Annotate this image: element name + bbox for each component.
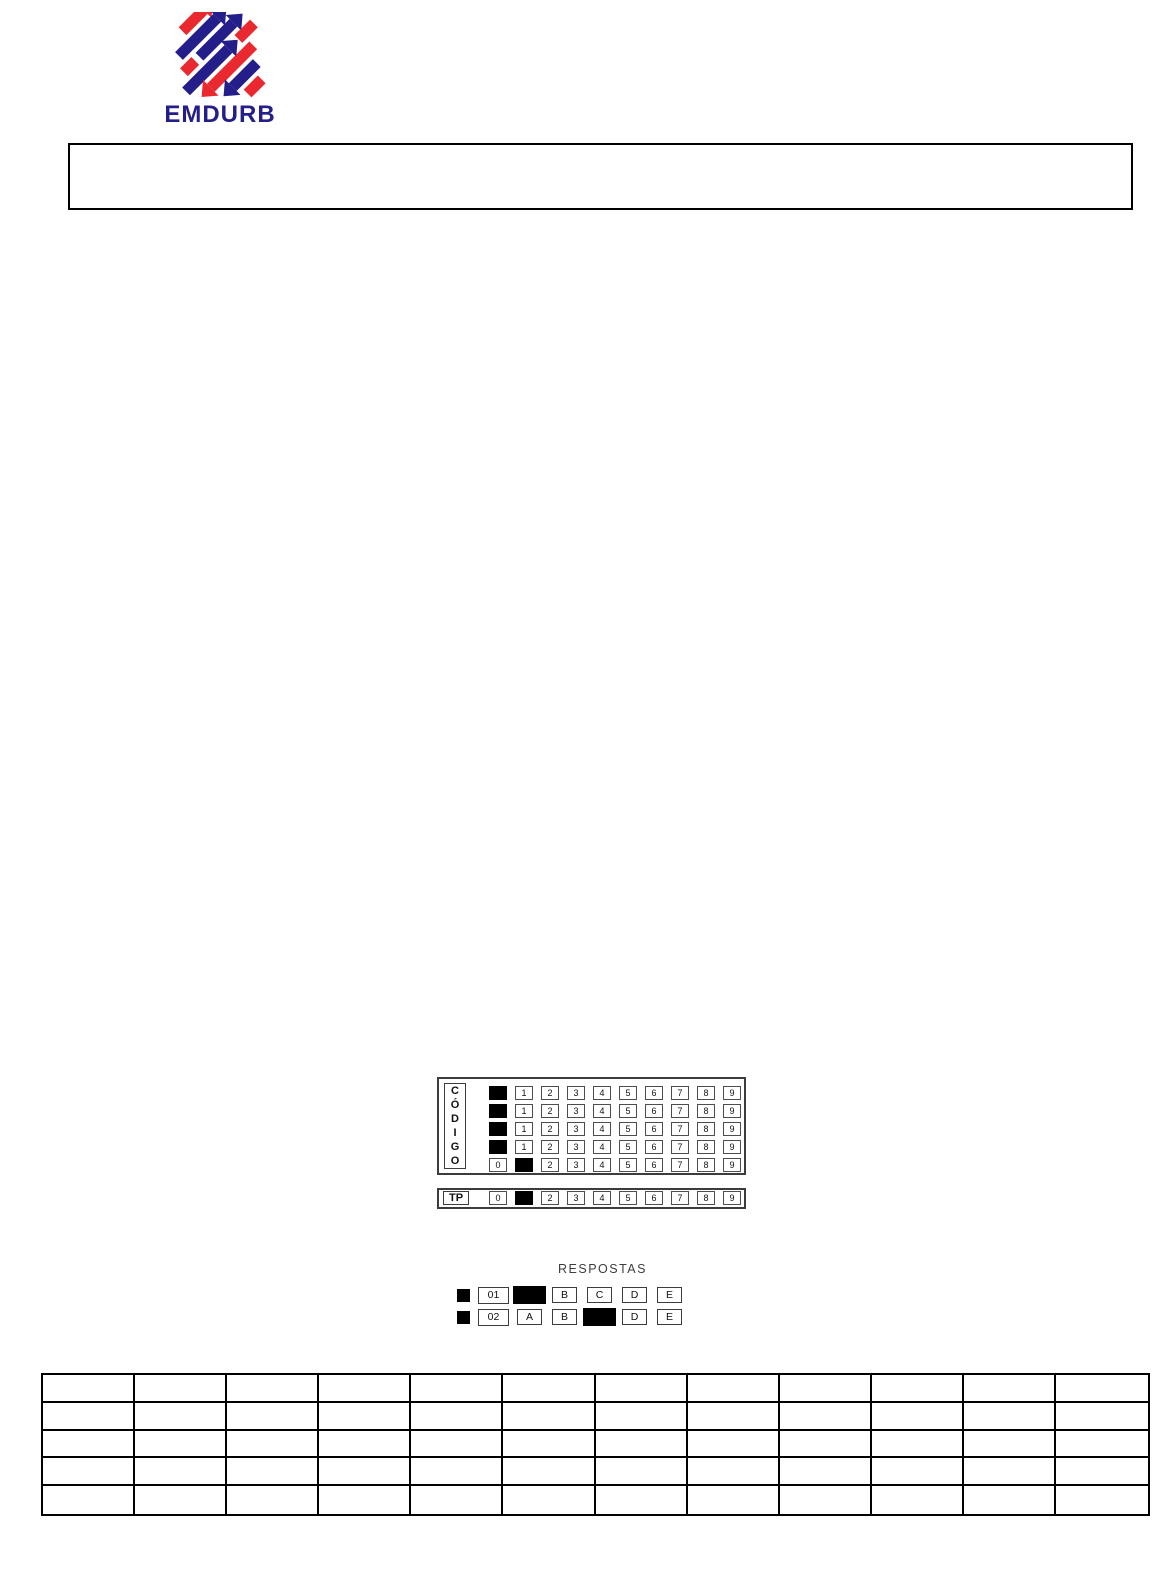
answer-table-cell[interactable] bbox=[503, 1486, 595, 1514]
answer-option-slot: E bbox=[652, 1286, 687, 1304]
digit-cell[interactable]: 8 bbox=[697, 1191, 715, 1205]
answer-table-cell[interactable] bbox=[964, 1431, 1056, 1459]
answer-table-cell[interactable] bbox=[780, 1486, 872, 1514]
digit-cell[interactable]: 2 bbox=[541, 1086, 559, 1100]
answer-option-slot bbox=[582, 1308, 617, 1326]
digit-row: 123456789 bbox=[489, 1140, 741, 1154]
digit-cell[interactable]: 3 bbox=[567, 1104, 585, 1118]
answer-table-cell[interactable] bbox=[319, 1486, 411, 1514]
emdurb-logo-text: EMDURB bbox=[150, 101, 290, 129]
answer-table-cell[interactable] bbox=[1056, 1375, 1148, 1403]
question-number: 02 bbox=[478, 1309, 509, 1326]
digit-row: 123456789 bbox=[489, 1086, 741, 1100]
answer-option-cell-filled[interactable] bbox=[513, 1286, 546, 1304]
answer-table-cell[interactable] bbox=[688, 1458, 780, 1486]
digit-cell[interactable]: 7 bbox=[671, 1191, 689, 1205]
answer-option-slot: C bbox=[582, 1286, 617, 1304]
digit-cell[interactable]: 6 bbox=[645, 1158, 663, 1172]
digit-cell[interactable]: 6 bbox=[645, 1191, 663, 1205]
question-number: 01 bbox=[478, 1287, 509, 1304]
answer-option-slot: B bbox=[547, 1286, 582, 1304]
digit-cell[interactable]: 2 bbox=[541, 1191, 559, 1205]
answer-option-slot: E bbox=[652, 1308, 687, 1326]
respostas-row: 01BCDE bbox=[455, 1286, 750, 1304]
answer-table-cell[interactable] bbox=[411, 1403, 503, 1431]
answer-table-cell[interactable] bbox=[319, 1403, 411, 1431]
emdurb-logo-icon bbox=[157, 12, 283, 100]
answer-sheet-page: EMDURB CÓDIGO 12345678912345678912345678… bbox=[0, 0, 1169, 1584]
answer-option-slot: A bbox=[512, 1308, 547, 1326]
answer-table-cell[interactable] bbox=[596, 1403, 688, 1431]
digit-cell[interactable]: 8 bbox=[697, 1158, 715, 1172]
codigo-label: CÓDIGO bbox=[444, 1083, 466, 1169]
answer-option-cell[interactable]: A bbox=[517, 1309, 542, 1325]
digit-cell[interactable]: 7 bbox=[671, 1122, 689, 1136]
answer-table-cell[interactable] bbox=[964, 1403, 1056, 1431]
digit-cell[interactable]: 3 bbox=[567, 1140, 585, 1154]
digit-row: 023456789 bbox=[489, 1158, 741, 1172]
answer-table-cell[interactable] bbox=[43, 1458, 135, 1486]
answer-table-cell[interactable] bbox=[596, 1375, 688, 1403]
digit-cell[interactable]: 7 bbox=[671, 1104, 689, 1118]
answer-table-cell[interactable] bbox=[227, 1486, 319, 1514]
answer-table-cell[interactable] bbox=[872, 1431, 964, 1459]
digit-cell[interactable]: 4 bbox=[593, 1086, 611, 1100]
answer-table-cell[interactable] bbox=[411, 1375, 503, 1403]
answer-table-cell[interactable] bbox=[964, 1375, 1056, 1403]
digit-cell[interactable]: 9 bbox=[723, 1191, 741, 1205]
tp-row: TP 023456789 bbox=[437, 1188, 746, 1209]
digit-cell[interactable]: 7 bbox=[671, 1140, 689, 1154]
answer-table-cell[interactable] bbox=[596, 1486, 688, 1514]
answer-table-cell[interactable] bbox=[135, 1431, 227, 1459]
answer-table-cell[interactable] bbox=[319, 1458, 411, 1486]
digit-cell[interactable]: 5 bbox=[619, 1140, 637, 1154]
answer-table-cell[interactable] bbox=[135, 1403, 227, 1431]
digit-row: 023456789 bbox=[489, 1191, 741, 1205]
digit-cell[interactable]: 2 bbox=[541, 1140, 559, 1154]
answer-table-cell[interactable] bbox=[1056, 1403, 1148, 1431]
answer-table-cell[interactable] bbox=[411, 1458, 503, 1486]
digit-cell[interactable]: 4 bbox=[593, 1122, 611, 1136]
answer-option-cell[interactable]: D bbox=[622, 1309, 647, 1325]
answer-table-cell[interactable] bbox=[872, 1375, 964, 1403]
codigo-label-letter: I bbox=[453, 1126, 456, 1140]
answer-table-cell[interactable] bbox=[411, 1486, 503, 1514]
digit-cell[interactable]: 3 bbox=[567, 1191, 585, 1205]
answer-table-cell[interactable] bbox=[596, 1458, 688, 1486]
digit-cell[interactable]: 3 bbox=[567, 1158, 585, 1172]
digit-cell[interactable]: 9 bbox=[723, 1104, 741, 1118]
row-marker-icon bbox=[457, 1311, 470, 1324]
digit-cell[interactable]: 5 bbox=[619, 1158, 637, 1172]
digit-cell[interactable]: 4 bbox=[593, 1104, 611, 1118]
respostas-row: 02ABDE bbox=[455, 1308, 750, 1326]
answer-table-cell[interactable] bbox=[780, 1403, 872, 1431]
answer-table-cell[interactable] bbox=[43, 1403, 135, 1431]
digit-cell[interactable]: 4 bbox=[593, 1191, 611, 1205]
answer-table-cell[interactable] bbox=[227, 1375, 319, 1403]
answer-option-slot: B bbox=[547, 1308, 582, 1326]
answer-table-cell[interactable] bbox=[503, 1375, 595, 1403]
codigo-label-letter: O bbox=[451, 1154, 460, 1168]
answer-table-cell[interactable] bbox=[503, 1458, 595, 1486]
digit-cell-filled[interactable] bbox=[489, 1122, 507, 1136]
digit-cell[interactable]: 9 bbox=[723, 1140, 741, 1154]
digit-cell[interactable]: 3 bbox=[567, 1086, 585, 1100]
emdurb-logo: EMDURB bbox=[150, 12, 290, 129]
answer-table-cell[interactable] bbox=[135, 1486, 227, 1514]
codigo-label-letter: Ó bbox=[451, 1098, 460, 1112]
answer-table-cell[interactable] bbox=[319, 1375, 411, 1403]
digit-cell[interactable]: 5 bbox=[619, 1104, 637, 1118]
codigo-grid: CÓDIGO 123456789123456789123456789123456… bbox=[437, 1077, 746, 1175]
answer-option-cell-filled[interactable] bbox=[583, 1308, 616, 1326]
digit-cell[interactable]: 7 bbox=[671, 1158, 689, 1172]
digit-cell[interactable]: 4 bbox=[593, 1158, 611, 1172]
answer-options: BCDE bbox=[512, 1286, 687, 1304]
answer-table-cell[interactable] bbox=[964, 1458, 1056, 1486]
answer-table-cell[interactable] bbox=[780, 1375, 872, 1403]
digit-cell[interactable]: 0 bbox=[489, 1158, 507, 1172]
answer-table bbox=[41, 1373, 1150, 1516]
answer-table-cell[interactable] bbox=[596, 1431, 688, 1459]
digit-cell[interactable]: 1 bbox=[515, 1104, 533, 1118]
answer-table-cell[interactable] bbox=[780, 1458, 872, 1486]
respostas-section: RESPOSTAS 01BCDE02ABDE bbox=[455, 1262, 750, 1330]
digit-row: 123456789 bbox=[489, 1104, 741, 1118]
answer-table-cell[interactable] bbox=[1056, 1486, 1148, 1514]
answer-option-cell[interactable]: E bbox=[657, 1287, 682, 1303]
answer-table-cell[interactable] bbox=[872, 1458, 964, 1486]
answer-table-cell[interactable] bbox=[135, 1458, 227, 1486]
answer-option-cell[interactable]: D bbox=[622, 1287, 647, 1303]
answer-table-cell[interactable] bbox=[872, 1486, 964, 1514]
answer-table-cell[interactable] bbox=[503, 1403, 595, 1431]
answer-table-cell[interactable] bbox=[411, 1431, 503, 1459]
codigo-label-letter: G bbox=[451, 1140, 460, 1154]
answer-option-cell[interactable]: C bbox=[587, 1287, 612, 1303]
answer-options: ABDE bbox=[512, 1308, 687, 1326]
digit-cell[interactable]: 6 bbox=[645, 1140, 663, 1154]
digit-cell[interactable]: 8 bbox=[697, 1104, 715, 1118]
answer-table-cell[interactable] bbox=[1056, 1431, 1148, 1459]
answer-option-cell[interactable]: B bbox=[552, 1309, 577, 1325]
digit-cell[interactable]: 8 bbox=[697, 1086, 715, 1100]
answer-option-slot: D bbox=[617, 1308, 652, 1326]
answer-table-cell[interactable] bbox=[503, 1431, 595, 1459]
answer-option-cell[interactable]: E bbox=[657, 1309, 682, 1325]
respostas-rows: 01BCDE02ABDE bbox=[455, 1286, 750, 1326]
digit-cell[interactable]: 7 bbox=[671, 1086, 689, 1100]
answer-table-cell[interactable] bbox=[688, 1431, 780, 1459]
digit-cell[interactable]: 9 bbox=[723, 1122, 741, 1136]
digit-cell[interactable]: 6 bbox=[645, 1122, 663, 1136]
answer-table-cell[interactable] bbox=[964, 1486, 1056, 1514]
row-marker-icon bbox=[457, 1289, 470, 1302]
tp-cells: 023456789 bbox=[489, 1191, 741, 1209]
answer-table-cell[interactable] bbox=[688, 1403, 780, 1431]
codigo-label-letter: C bbox=[451, 1084, 459, 1098]
answer-table-cell[interactable] bbox=[43, 1375, 135, 1403]
digit-cell-filled[interactable] bbox=[515, 1191, 533, 1205]
digit-cell[interactable]: 9 bbox=[723, 1086, 741, 1100]
digit-cell[interactable]: 5 bbox=[619, 1086, 637, 1100]
answer-table-cell[interactable] bbox=[872, 1403, 964, 1431]
digit-cell[interactable]: 9 bbox=[723, 1158, 741, 1172]
codigo-label-letter: D bbox=[451, 1112, 459, 1126]
answer-table-cell[interactable] bbox=[227, 1458, 319, 1486]
answer-table-cell[interactable] bbox=[780, 1431, 872, 1459]
answer-table-cell[interactable] bbox=[43, 1486, 135, 1514]
identification-box[interactable] bbox=[68, 143, 1133, 210]
digit-cell[interactable]: 8 bbox=[697, 1140, 715, 1154]
answer-table-cell[interactable] bbox=[1056, 1458, 1148, 1486]
digit-cell[interactable]: 4 bbox=[593, 1140, 611, 1154]
digit-cell[interactable]: 5 bbox=[619, 1122, 637, 1136]
answer-table-cell[interactable] bbox=[688, 1375, 780, 1403]
tp-label: TP bbox=[443, 1191, 469, 1205]
digit-cell[interactable]: 0 bbox=[489, 1191, 507, 1205]
respostas-title: RESPOSTAS bbox=[455, 1262, 750, 1278]
answer-table-cell[interactable] bbox=[227, 1403, 319, 1431]
digit-cell[interactable]: 6 bbox=[645, 1104, 663, 1118]
digit-cell[interactable]: 1 bbox=[515, 1122, 533, 1136]
digit-cell[interactable]: 3 bbox=[567, 1122, 585, 1136]
digit-cell[interactable]: 8 bbox=[697, 1122, 715, 1136]
digit-cell[interactable]: 1 bbox=[515, 1140, 533, 1154]
answer-table-cell[interactable] bbox=[135, 1375, 227, 1403]
codigo-rows: 1234567891234567891234567891234567890234… bbox=[489, 1086, 741, 1176]
digit-cell[interactable]: 5 bbox=[619, 1191, 637, 1205]
answer-table-cell[interactable] bbox=[688, 1486, 780, 1514]
answer-option-slot: D bbox=[617, 1286, 652, 1304]
digit-cell[interactable]: 1 bbox=[515, 1086, 533, 1100]
digit-cell-filled[interactable] bbox=[489, 1086, 507, 1100]
digit-cell-filled[interactable] bbox=[489, 1140, 507, 1154]
answer-table-cell[interactable] bbox=[227, 1431, 319, 1459]
answer-table-cell[interactable] bbox=[43, 1431, 135, 1459]
digit-cell[interactable]: 2 bbox=[541, 1122, 559, 1136]
answer-table-cell[interactable] bbox=[319, 1431, 411, 1459]
answer-option-cell[interactable]: B bbox=[552, 1287, 577, 1303]
digit-cell-filled[interactable] bbox=[489, 1104, 507, 1118]
digit-cell[interactable]: 2 bbox=[541, 1158, 559, 1172]
digit-cell-filled[interactable] bbox=[515, 1158, 533, 1172]
digit-cell[interactable]: 2 bbox=[541, 1104, 559, 1118]
digit-cell[interactable]: 6 bbox=[645, 1086, 663, 1100]
digit-row: 123456789 bbox=[489, 1122, 741, 1136]
answer-option-slot bbox=[512, 1286, 547, 1304]
